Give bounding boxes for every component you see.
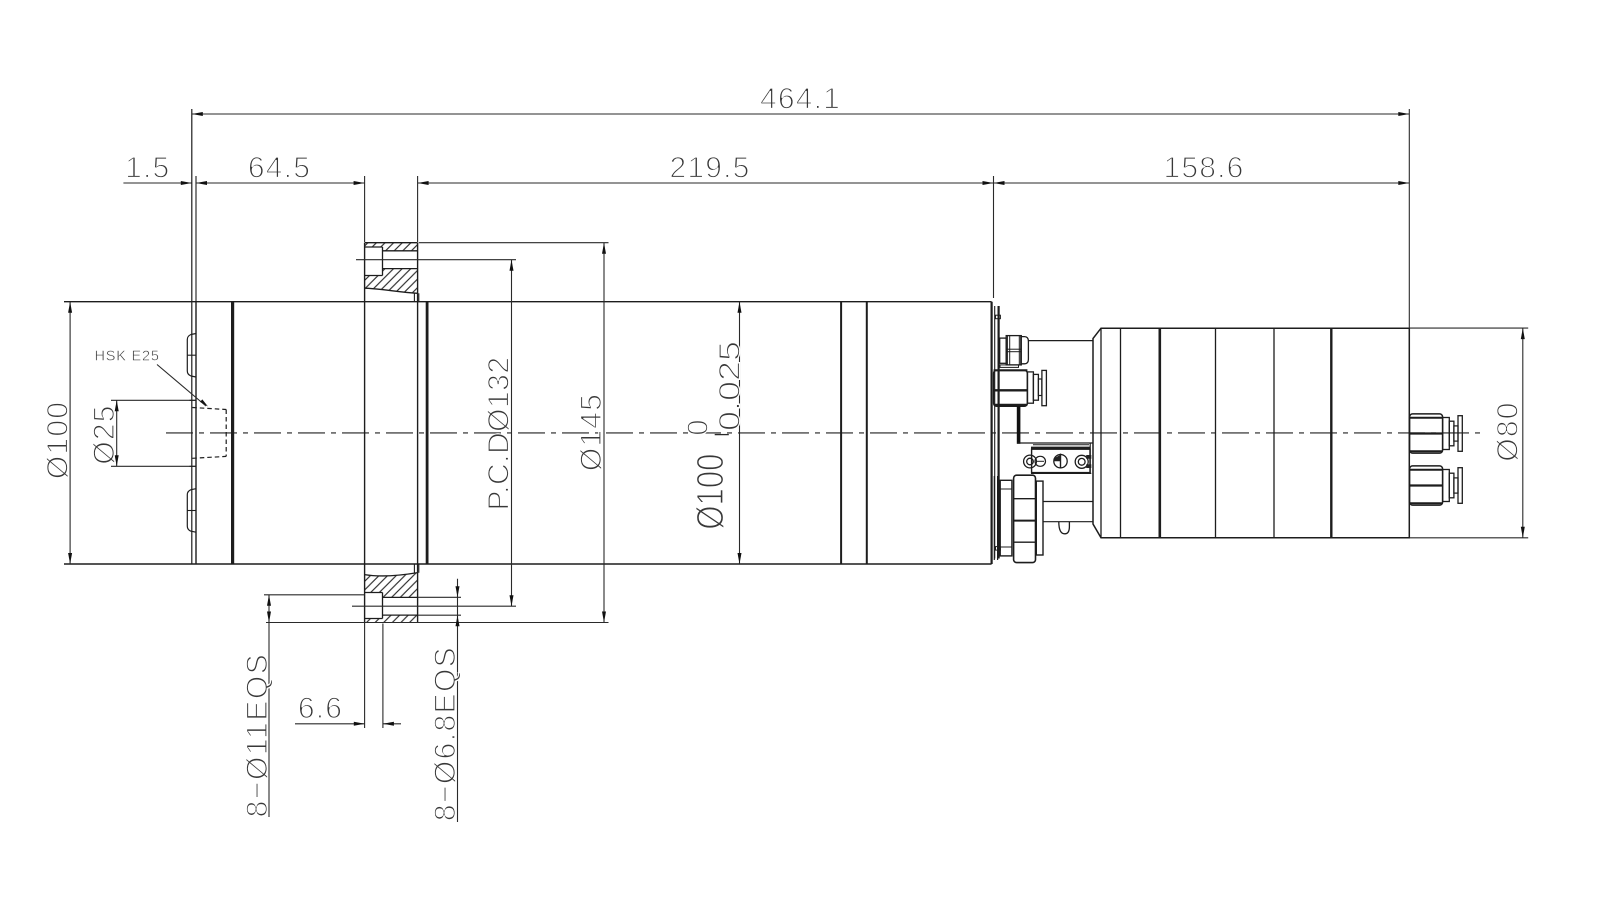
svg-text:Ø100: Ø100 xyxy=(42,401,75,479)
svg-text:Ø145: Ø145 xyxy=(575,393,608,471)
svg-text:8−Ø11EQS: 8−Ø11EQS xyxy=(241,653,274,818)
svg-text:Ø25: Ø25 xyxy=(88,404,121,464)
svg-text:1.5: 1.5 xyxy=(125,152,170,185)
svg-text:158.6: 158.6 xyxy=(1163,152,1244,185)
svg-text:0.025: 0.025 xyxy=(713,341,746,431)
svg-text:Ø100: Ø100 xyxy=(690,454,732,530)
svg-text:64.5: 64.5 xyxy=(248,152,311,185)
svg-text:Ø80: Ø80 xyxy=(1492,401,1525,461)
svg-text:464.1: 464.1 xyxy=(760,83,841,116)
svg-text:8−Ø6.8EQS: 8−Ø6.8EQS xyxy=(429,646,462,821)
svg-text:219.5: 219.5 xyxy=(669,152,750,185)
svg-text:6.6: 6.6 xyxy=(298,692,343,725)
svg-text:0: 0 xyxy=(683,418,715,435)
svg-text:HSK E25: HSK E25 xyxy=(95,349,160,365)
svg-text:P.C.DØ132: P.C.DØ132 xyxy=(483,356,516,510)
